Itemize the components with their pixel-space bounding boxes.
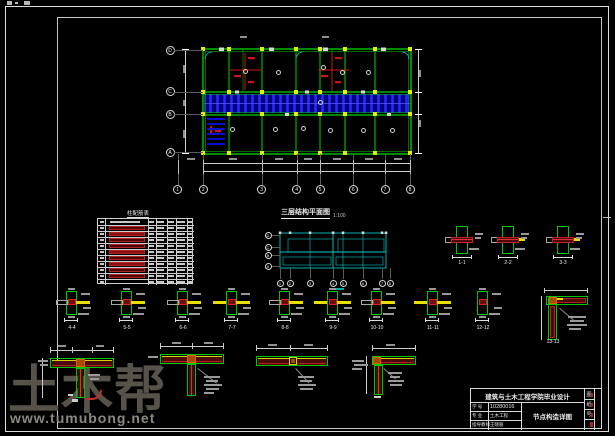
cell-text <box>157 227 164 229</box>
cell-text <box>157 221 164 223</box>
grid-axis-bubble: B <box>265 252 272 259</box>
cell-text <box>168 239 174 241</box>
cell-text <box>149 239 154 241</box>
axis-line <box>310 268 311 279</box>
rebar-fill <box>550 306 555 338</box>
dim-text <box>275 158 283 160</box>
beam-stub <box>167 300 179 305</box>
column-square <box>373 151 377 155</box>
grid-axis-bubble: 7 <box>379 280 386 287</box>
mark <box>80 369 81 397</box>
cell-text <box>157 239 164 241</box>
mark <box>415 114 422 115</box>
field-value: 10280016 <box>490 404 514 410</box>
cell-text <box>149 245 154 247</box>
mark <box>92 347 93 353</box>
mark <box>304 344 313 346</box>
mark <box>498 239 518 240</box>
grid-axis-bubble: 1 <box>173 185 182 194</box>
mark <box>256 345 257 351</box>
column-square <box>294 47 298 51</box>
field-label: 学 号 <box>472 404 482 410</box>
mark <box>290 318 291 322</box>
cell-text <box>188 245 193 247</box>
dim-line <box>203 163 411 164</box>
axis-line <box>174 92 203 93</box>
mark <box>290 345 291 351</box>
joint-core <box>281 299 289 305</box>
cell-text <box>188 251 193 253</box>
joint-core <box>329 299 337 305</box>
joint-core <box>123 299 131 305</box>
note-text <box>322 36 329 38</box>
field-label: 专 业 <box>472 413 482 419</box>
column-square <box>227 112 231 116</box>
mark <box>438 318 439 322</box>
mark <box>338 318 339 322</box>
detail-label: 8-8 <box>270 325 300 331</box>
annotation-text <box>570 248 580 250</box>
dim-text <box>183 130 185 138</box>
dim-line <box>64 320 78 321</box>
dim-text <box>187 158 195 160</box>
dim-line <box>119 320 133 321</box>
grid-axis-bubble: 4 <box>292 185 301 194</box>
grid-axis-bubble: 8 <box>406 185 415 194</box>
column-square <box>408 112 412 116</box>
annotation-text <box>241 293 250 295</box>
mark <box>72 347 73 353</box>
mark <box>64 318 65 322</box>
axis-line <box>390 268 391 279</box>
detail-label: 10-10 <box>362 325 392 331</box>
cell-text <box>168 221 174 223</box>
column-square <box>294 90 298 94</box>
mark <box>429 316 436 318</box>
cell-text <box>168 275 174 277</box>
dim-line <box>50 350 114 351</box>
tee-joint-detail <box>148 342 236 400</box>
joint-core <box>373 357 381 364</box>
cell-text <box>188 269 193 271</box>
mark <box>572 255 573 259</box>
column-square <box>227 90 231 94</box>
annotation-text <box>475 237 481 239</box>
dim-text <box>374 396 381 398</box>
mark <box>320 160 321 174</box>
detail-label: 6-6 <box>168 325 198 331</box>
grid-axis-bubble: 8 <box>387 280 394 287</box>
annotation-text <box>133 313 144 315</box>
mark <box>410 160 411 174</box>
detail-label: 13-13 <box>540 339 566 345</box>
annotation-text <box>204 384 222 386</box>
cell-text <box>110 221 140 223</box>
axis-line <box>272 266 280 267</box>
mark <box>113 347 114 353</box>
cell-text <box>149 233 154 235</box>
mark <box>123 288 130 290</box>
rebar-bar <box>557 298 563 300</box>
annotation-text <box>300 380 312 382</box>
joint-core <box>552 237 574 243</box>
joint-core <box>179 299 187 305</box>
joint-core <box>549 297 557 304</box>
cell-text <box>177 233 185 235</box>
cell-text <box>149 221 154 223</box>
mark <box>544 288 545 293</box>
annotation-text <box>569 328 581 330</box>
section-sketch <box>109 226 145 230</box>
cell-text <box>188 281 193 283</box>
annotation-text <box>136 293 145 295</box>
mark <box>475 318 476 322</box>
section-sketch <box>109 274 145 278</box>
cell-text <box>157 275 164 277</box>
section-sketch <box>109 250 145 254</box>
joint-detail: 6-6 <box>161 288 205 332</box>
cell-text <box>157 281 164 283</box>
mark <box>517 255 518 259</box>
annotation-text <box>442 293 451 295</box>
drawing-name: 节点构造详图 <box>521 411 584 421</box>
mark <box>175 318 176 322</box>
cell-text <box>168 233 174 235</box>
mark <box>415 49 422 50</box>
axis-line <box>363 268 364 279</box>
mark <box>224 318 225 322</box>
annotation-text <box>206 388 219 390</box>
mark <box>415 153 422 154</box>
annotation-text <box>515 248 525 250</box>
joint-detail: 4-4 <box>50 288 94 332</box>
mark <box>378 366 379 394</box>
section-sketch <box>109 238 145 242</box>
cell-text <box>188 227 193 229</box>
axis-line <box>174 50 203 51</box>
cell-text <box>168 263 174 265</box>
annotation-text <box>492 293 501 295</box>
mark <box>369 318 370 322</box>
dim-line <box>418 50 419 154</box>
annotation-text <box>475 233 483 235</box>
field-value: 王晓丽 <box>490 422 504 428</box>
joint-detail: 10-10 <box>355 288 399 332</box>
annotation-text <box>148 356 158 358</box>
dim-line <box>175 320 189 321</box>
corner-mark <box>15 2 18 4</box>
mark <box>96 345 104 347</box>
annotation-text <box>494 307 502 309</box>
mark <box>327 345 328 351</box>
cell-text <box>177 221 185 223</box>
annotation-text <box>204 392 214 394</box>
column-square <box>373 112 377 116</box>
mark <box>50 347 51 353</box>
annotation-text <box>388 307 396 309</box>
revision-seal <box>591 393 593 397</box>
beam-stub <box>56 300 68 305</box>
column-square <box>227 47 231 51</box>
grid-axis-bubble: 2 <box>199 185 208 194</box>
annotation-text <box>81 293 90 295</box>
column-square <box>318 47 322 51</box>
revision-seal <box>591 413 593 417</box>
annotation-text <box>300 388 313 390</box>
cell-text <box>100 275 104 277</box>
cell-text <box>157 269 164 271</box>
mark <box>297 160 298 174</box>
cell-text <box>100 251 104 253</box>
joint-detail: 1-1 <box>439 224 485 266</box>
mark <box>228 316 235 318</box>
section-sketch <box>109 268 145 272</box>
annotation-text <box>390 376 400 378</box>
annotation-text <box>521 237 527 239</box>
annotation-text <box>138 307 146 309</box>
title-block: 建筑与土木工程学院毕业设计 节点构造详图 学 号 10280016 专 业 土木… <box>470 388 602 429</box>
cell-text <box>177 239 185 241</box>
detail-label: 4-4 <box>57 325 87 331</box>
mark <box>228 288 235 290</box>
dim-line <box>452 257 472 258</box>
axis-line <box>343 268 344 279</box>
joint-detail: 9-9 <box>311 288 355 332</box>
annotation-text <box>296 307 304 309</box>
beam-stub <box>361 300 373 305</box>
grid-axis-bubble: 7 <box>381 185 390 194</box>
cell-text <box>149 275 154 277</box>
dim-line <box>256 348 328 349</box>
rebar-bar <box>414 301 427 304</box>
annotation-text <box>489 313 500 315</box>
mark <box>132 318 133 322</box>
cell-text <box>188 275 193 277</box>
annotation-text <box>298 376 314 378</box>
cell-text <box>157 245 164 247</box>
cell-text <box>177 281 185 283</box>
column-square <box>260 47 264 51</box>
section-sketch <box>109 262 145 266</box>
grid-axis-bubble: 1 <box>277 280 284 287</box>
room-mark <box>273 127 278 132</box>
joint-core <box>479 299 487 305</box>
cell-text <box>168 281 174 283</box>
mark <box>188 318 189 322</box>
edge-mark <box>603 217 611 218</box>
mark <box>498 255 499 259</box>
field-label: 指导教师 <box>472 422 490 428</box>
cell-text <box>177 245 185 247</box>
mark <box>68 288 75 290</box>
dim-text <box>72 399 78 402</box>
cell-text <box>149 263 154 265</box>
mark <box>329 316 336 318</box>
dim-line <box>425 320 439 321</box>
dim-line <box>366 356 367 394</box>
annotation-text <box>40 364 48 366</box>
annotation-text <box>204 376 220 378</box>
room-mark <box>321 65 326 70</box>
mark <box>429 288 436 290</box>
annotation-text <box>576 233 584 235</box>
detail-label: 9-9 <box>318 325 348 331</box>
corner-joint-detail: 13-13 <box>540 288 604 344</box>
rebar-hook-arc <box>86 390 102 400</box>
annotation-text <box>354 364 368 366</box>
annotation-text <box>38 360 48 362</box>
mark <box>204 342 213 344</box>
mark <box>160 343 161 349</box>
annotation-text <box>194 307 202 309</box>
column-square <box>227 151 231 155</box>
grid-axis-bubble: 6 <box>349 185 358 194</box>
joint-detail: 12-12 <box>461 288 505 332</box>
cell-text <box>188 233 193 235</box>
dim-text <box>419 70 421 77</box>
room-mark <box>243 69 248 74</box>
stair-cross-marks <box>230 53 349 90</box>
cell-text <box>149 281 154 283</box>
column-square <box>260 90 264 94</box>
dim-line <box>372 348 416 349</box>
dim-text <box>365 158 373 160</box>
mark <box>425 318 426 322</box>
mark <box>179 316 186 318</box>
mark <box>373 288 380 290</box>
mark <box>262 160 263 174</box>
cell-text <box>149 227 154 229</box>
mark <box>373 316 380 318</box>
mark <box>471 255 472 259</box>
grid-axis-bubble: 3 <box>307 280 314 287</box>
column-square <box>318 90 322 94</box>
axis-line <box>272 255 280 256</box>
dim-line <box>203 171 411 172</box>
annotation-text <box>294 293 303 295</box>
cell-text <box>100 269 104 271</box>
tee-joint-detail <box>38 344 122 404</box>
mark <box>281 316 288 318</box>
mark <box>281 288 288 290</box>
axis-line <box>290 268 291 279</box>
mark <box>353 160 354 174</box>
section-sketch <box>109 244 145 248</box>
mark <box>277 318 278 322</box>
door-arc <box>205 52 409 59</box>
cell-text <box>157 257 164 259</box>
room-mark <box>390 128 395 133</box>
dim-line <box>185 49 186 154</box>
cell-text <box>188 263 193 265</box>
annotation-text <box>521 233 529 235</box>
cell-text <box>157 251 164 253</box>
dim-line <box>277 320 291 321</box>
detail-label: 12-12 <box>468 325 498 331</box>
dim-text <box>333 158 341 160</box>
annotation-text <box>78 313 89 315</box>
mark <box>488 318 489 322</box>
column-square <box>343 90 347 94</box>
mark <box>105 219 106 285</box>
axis-line <box>174 114 203 115</box>
revision-seal <box>591 403 593 407</box>
annotation-text <box>570 320 584 322</box>
cell-text <box>177 275 185 277</box>
cell-text <box>168 257 174 259</box>
room-mark <box>340 70 345 75</box>
annotation-text <box>383 313 394 315</box>
annotation-text <box>298 384 316 386</box>
mark <box>415 92 422 93</box>
cell-text <box>168 269 174 271</box>
joint-detail: 7-7 <box>210 288 254 332</box>
axis-line <box>382 268 383 279</box>
annotation-text <box>386 293 395 295</box>
joint-core <box>429 299 437 305</box>
dim-text <box>304 158 312 160</box>
mark <box>325 318 326 322</box>
dim-line <box>553 257 573 258</box>
mark <box>77 318 78 322</box>
note-text <box>240 36 247 38</box>
mark <box>415 345 416 351</box>
joint-core <box>497 237 519 243</box>
rebar-bar <box>76 301 90 304</box>
watermark-url: www.tumubong.net <box>10 410 155 426</box>
annotation-text <box>206 380 218 382</box>
cell-text <box>177 263 185 265</box>
cad-drawing-sheet: 土木帮 www.tumubong.net <box>0 0 615 436</box>
cell-text <box>100 245 104 247</box>
rebar-bar <box>131 301 145 304</box>
detail-label: 5-5 <box>112 325 142 331</box>
rebar-bar <box>314 301 327 304</box>
mark <box>386 344 395 346</box>
schedule-table-title: 柱配筋表 <box>127 209 149 218</box>
beam-joint-detail <box>252 344 332 398</box>
cell-text <box>177 257 185 259</box>
mark <box>119 318 120 322</box>
annotation-text <box>238 313 249 315</box>
axis-line <box>272 247 280 248</box>
mark <box>58 345 66 347</box>
rebar-bar <box>437 301 451 304</box>
cell-text <box>149 251 154 253</box>
detail-label: 2-2 <box>493 260 523 266</box>
column-square <box>260 112 264 116</box>
room-mark <box>366 70 371 75</box>
mark <box>385 160 386 174</box>
grid-axis-bubble: 5 <box>316 185 325 194</box>
room-mark <box>361 128 366 133</box>
rebar-bar <box>187 301 201 304</box>
mark <box>553 239 573 240</box>
cell-text <box>188 239 193 241</box>
mark <box>479 288 486 290</box>
room-mark <box>328 128 333 133</box>
grid-axis-bubble: C <box>265 244 272 251</box>
column-square <box>343 151 347 155</box>
titleblock-header: 建筑与土木工程学院毕业设计 <box>471 391 584 401</box>
dim-line <box>325 320 339 321</box>
mark <box>587 288 588 293</box>
joint-core <box>228 299 236 305</box>
cell-text <box>188 257 193 259</box>
joint-detail: 5-5 <box>105 288 149 332</box>
cell-text <box>168 251 174 253</box>
cell-text <box>157 233 164 235</box>
